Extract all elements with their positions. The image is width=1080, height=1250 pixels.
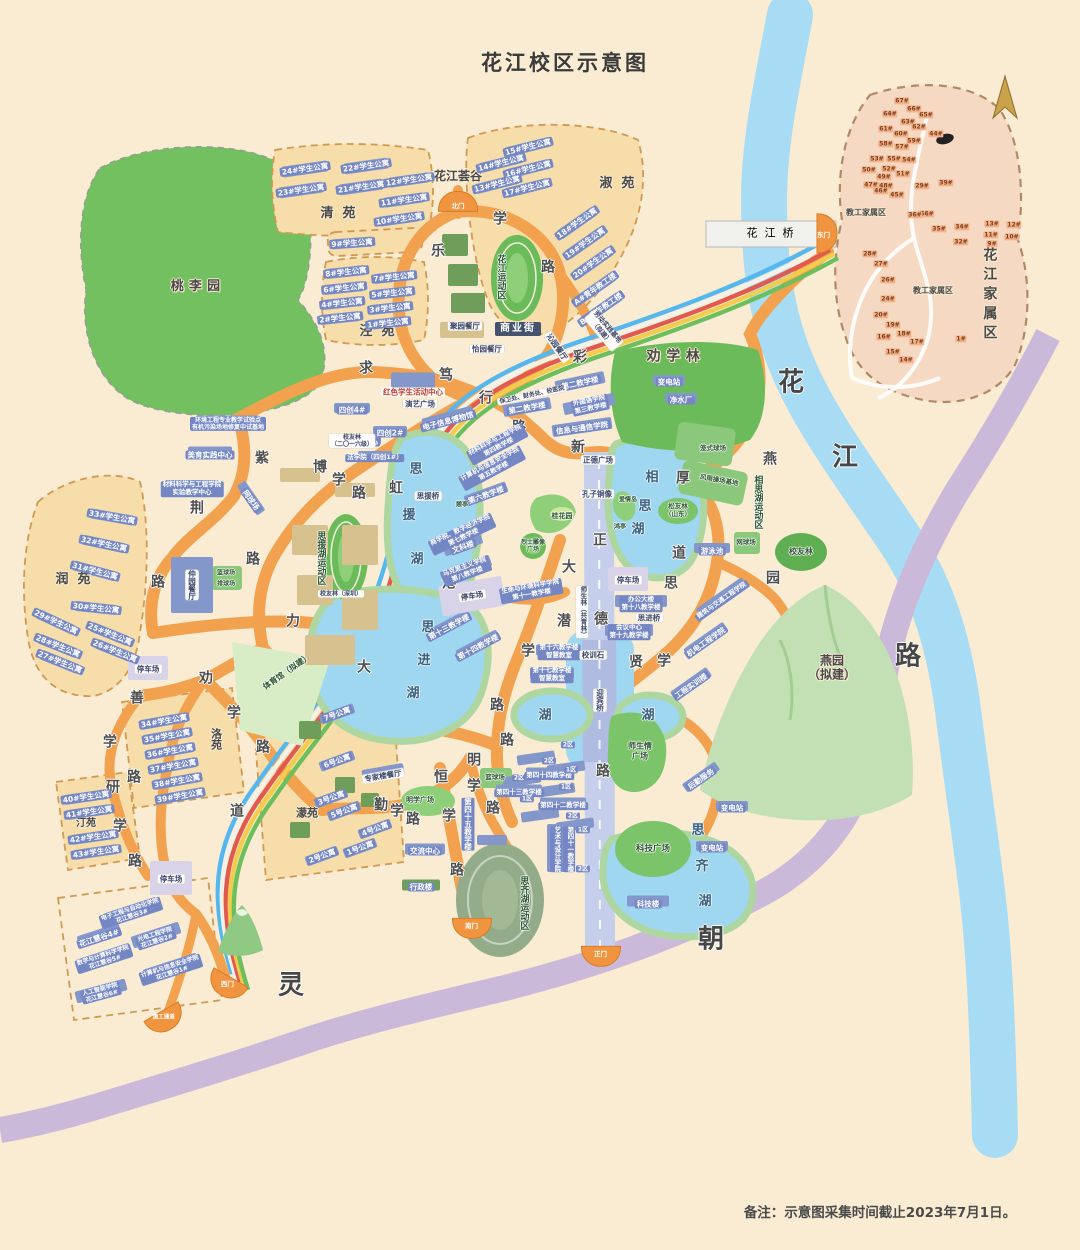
campus-gate: 正门	[581, 946, 621, 967]
building-label: 2#学生公寓	[317, 311, 363, 325]
area-name-label: 润 苑	[55, 572, 90, 588]
place-label: 聚园餐厅	[448, 322, 482, 331]
building-label: 游泳池	[699, 547, 726, 556]
family-building-number: 51#	[895, 170, 910, 177]
building-label: 11#学生公寓	[378, 192, 429, 208]
road-name-char: 道	[672, 546, 686, 563]
green-space-label: 桂花园	[552, 512, 573, 520]
road-name-char: 路	[486, 801, 500, 818]
green-space-label: 花江运动区	[495, 255, 506, 300]
building-label: 3#学生公寓	[367, 301, 413, 315]
building-label: 1区	[564, 766, 578, 773]
place-label: 停车场	[458, 589, 486, 602]
family-building-number: 39#	[938, 179, 953, 186]
green-space-label: 排球场	[217, 580, 235, 587]
activity-center-label: 红色学生活动中心	[381, 388, 445, 397]
place-label: 迎宾桥	[594, 689, 607, 712]
gate-name-label: 东门	[817, 228, 830, 238]
building-label: 35#学生公寓	[141, 727, 193, 745]
family-building-number: 49#	[876, 173, 891, 180]
family-building-number: 13#	[984, 220, 999, 227]
road-name-char: 路	[596, 764, 610, 781]
building-label: 12#学生公寓	[383, 172, 434, 188]
building-label: 38#学生公寓	[151, 772, 203, 790]
green-space-label: 鸿亭	[614, 523, 626, 530]
family-building-number: 28#	[862, 250, 877, 257]
area-name-label: 燕园 （拟建）	[808, 654, 856, 683]
family-building-number: 26#	[880, 276, 895, 283]
road-name-char: 学	[657, 654, 671, 671]
road-name-char: 求	[359, 361, 373, 378]
building-label: 材料科学与工程学院 实验教学中心	[161, 481, 224, 497]
family-building-number: 53#	[869, 155, 884, 162]
area-name-label: 淑 苑	[599, 176, 634, 192]
building-label: 第十七教学楼 智慧教室	[531, 667, 574, 683]
green-space-label: 憩亭	[456, 501, 468, 508]
major-road-char: 花	[778, 367, 804, 398]
building-label: 第四十二教学楼	[538, 802, 588, 810]
road-name-char: 恒	[434, 770, 448, 787]
road-name-char: 道	[230, 804, 244, 821]
lake-name-char: 湖	[410, 552, 423, 568]
family-building-number: 45#	[889, 191, 904, 198]
place-label: 思进桥	[636, 614, 663, 623]
green-space-label: 思援湖运动区	[315, 531, 326, 585]
road-name-char: 贤	[629, 655, 643, 672]
road-name-char: 学	[467, 779, 481, 796]
area-name-label: 花江荟谷	[434, 169, 482, 183]
building-label: 1区	[520, 795, 534, 802]
road-name-char: 学	[103, 735, 117, 752]
family-building-number: 46#	[873, 187, 888, 194]
place-label: 劳动实践基地 （拟建）	[584, 309, 624, 352]
gate-name-label: 西门	[221, 978, 234, 988]
building-label: 1区	[576, 826, 590, 833]
road-name-char: 思	[664, 576, 678, 593]
bridge-label: 花 江 桥	[747, 226, 794, 239]
lake-name-char: 思	[638, 499, 651, 515]
lake-name-char: 湖	[631, 522, 644, 538]
building-label: 6#学生公寓	[321, 281, 367, 295]
green-space-label: 网球场	[736, 539, 756, 547]
building-label: 10#学生公寓	[373, 211, 424, 227]
building-label: 32#学生公寓	[78, 534, 129, 553]
family-building-number: 14#	[898, 356, 913, 363]
campus-gate: 施工通道	[143, 1001, 188, 1039]
family-building-number: 27#	[873, 260, 888, 267]
area-name-label: 濛苑	[296, 806, 318, 819]
building-label: 39#学生公寓	[154, 787, 206, 805]
family-building-number: 55#	[886, 155, 901, 162]
road-name-char: 学	[390, 804, 404, 821]
building-label: 电子工程与自动化学院 花江慧谷3#	[98, 896, 163, 929]
lake-name-char: 思	[691, 823, 704, 839]
road-name-char: 学	[332, 473, 346, 490]
green-space-label: 相思湖运动区	[752, 475, 763, 529]
building-label: 数学与计算科学学院 花江慧谷5#	[74, 943, 134, 975]
building-label: 4号公寓	[359, 819, 392, 838]
building-label: 4#学生公寓	[319, 296, 365, 310]
building-label: 5号公寓	[328, 801, 361, 820]
road-name-char: 路	[352, 486, 366, 503]
building-label: 后勤服务	[684, 766, 717, 793]
building-label: 建筑与交通工程学院	[694, 580, 750, 622]
place-label: 校训石	[580, 651, 607, 660]
building-label: 净水厂	[668, 396, 695, 405]
building-label: 艺术与设计学院	[550, 826, 562, 872]
road-name-char: 新	[571, 440, 585, 457]
road-name-char: 厚	[676, 471, 690, 488]
road-name-char: 路	[246, 552, 260, 569]
road-name-char: 路	[256, 740, 270, 757]
road-name-char: 学	[493, 212, 507, 229]
building-label: 43#学生公寓	[70, 844, 121, 860]
building-label: 9#学生公寓	[329, 237, 375, 249]
place-label: 停车场	[615, 576, 642, 585]
building-label: 变电站	[656, 378, 683, 387]
major-road-char: 路	[895, 641, 921, 672]
building-label: 生命与环境科学学院 第十一教学楼	[499, 578, 563, 604]
area-name-label: 清 苑	[320, 206, 355, 222]
area-name-label: 桃李园	[171, 279, 226, 295]
note-label: 备注：	[744, 1205, 785, 1221]
building-label: 1区	[559, 783, 573, 790]
lake-name-char: 湖	[641, 708, 654, 724]
building-label: 工程实训楼	[671, 670, 710, 701]
road-name-char: 学	[442, 809, 456, 826]
building-label: 15#学生公寓	[502, 136, 553, 157]
area-name-label: 教工家属区	[913, 286, 953, 296]
family-building-number: 34#	[954, 223, 969, 230]
place-label: 孔子铜像	[580, 490, 614, 499]
road-name-char: 笃	[439, 368, 453, 385]
building-label: 法学院（四创1#）	[345, 454, 404, 462]
green-space-label: 篮球场	[485, 774, 505, 782]
road-name-char: 学	[227, 706, 241, 723]
campus-gate: 西门	[203, 967, 248, 1005]
road-name-char: 路	[128, 854, 142, 871]
family-building-number: 19#	[885, 321, 900, 328]
gate-name-label: 施工通道	[153, 1012, 175, 1020]
family-building-number: 29#	[914, 182, 929, 189]
place-label: 正德广场	[581, 456, 615, 465]
lake-name-char: 湖	[698, 894, 711, 910]
building-label: 24#学生公寓	[279, 161, 330, 177]
road-name-char: 紫	[255, 451, 269, 468]
building-label: 5#学生公寓	[369, 286, 415, 300]
road-name-char: 德	[594, 612, 608, 629]
building-label: 第四十一教学楼	[563, 826, 575, 872]
gate-name-label: 南门	[466, 920, 479, 930]
building-label: 交流中心	[408, 847, 442, 856]
map-labels-layer: 桃李园清 苑泾 苑淑 苑润 苑洛苑汀苑濛苑花江荟谷劝学林花江家属区教工家属区教工…	[0, 0, 1080, 1250]
building-label: 7号公寓	[321, 704, 354, 723]
green-space-label: 风雨操场基地	[699, 474, 739, 488]
building-label: 会议中心 第十九教学楼	[608, 624, 651, 640]
building-label: 22#学生公寓	[340, 158, 391, 174]
lake-name-char: 援	[402, 508, 415, 524]
family-building-number: 58#	[878, 140, 893, 147]
family-building-number: 35#	[931, 225, 946, 232]
green-space-label: 校友林	[789, 547, 813, 557]
building-label: 30#学生公寓	[70, 601, 121, 615]
road-name-char: 勤	[374, 798, 388, 815]
building-label: 7#学生公寓	[371, 270, 417, 284]
road-name-char: 路	[127, 770, 141, 787]
place-label: 思援桥	[415, 492, 442, 501]
building-label: 变电站	[699, 844, 726, 853]
building-label: 第四十五教学楼	[462, 798, 475, 851]
building-label: 2号公寓	[306, 846, 339, 865]
green-space-label: 松友林 （山东）	[665, 503, 691, 519]
green-space-label: 体育馆（拟建）	[261, 652, 312, 692]
building-label: 四创4#	[337, 406, 368, 415]
building-label: 2区	[542, 757, 556, 764]
green-space-label: 师生情 广场	[628, 741, 652, 760]
road-name-char: 大	[357, 660, 371, 677]
family-building-number: 9#	[986, 240, 997, 247]
green-space-label: 笼式球场	[700, 445, 726, 453]
road-name-char: 荆	[190, 501, 204, 518]
place-label: 演艺广场	[403, 400, 437, 409]
building-label: 6号公寓	[321, 751, 354, 770]
lake-name-char: 湖	[406, 686, 419, 702]
area-name-label: 花江家属区	[981, 247, 998, 345]
family-building-number: 12#	[1006, 221, 1021, 228]
building-label: 42#学生公寓	[67, 829, 118, 845]
building-label: 计算机与信息安全学院 花江慧谷1#	[138, 953, 203, 986]
road-name-char: 路	[541, 260, 555, 277]
major-road-char: 灵	[278, 970, 304, 1001]
place-label: 怡园餐厅	[470, 345, 504, 354]
family-building-number: 32#	[953, 238, 968, 245]
building-label: 2区	[512, 774, 526, 781]
family-building-number: 61#	[878, 125, 893, 132]
note-text: 示意图采集时间截止2023年7月1日。	[784, 1205, 1016, 1221]
building-label: 光电工程学院 花江慧谷2#	[135, 925, 177, 951]
family-building-number: 11#	[983, 231, 998, 238]
road-name-char: 园	[766, 571, 780, 588]
lake-name-char: 进	[417, 653, 430, 669]
family-building-number: 15#	[885, 348, 900, 355]
lake-name-char: 齐	[695, 859, 708, 875]
family-building-number: 24#	[880, 295, 895, 302]
road-name-char: 行	[479, 391, 493, 408]
building-label: 第十六教学楼 智慧教室	[538, 644, 581, 660]
road-name-char: 路	[151, 575, 165, 592]
major-road-char: 江	[832, 442, 858, 473]
road-name-char: 虹	[389, 481, 403, 498]
family-building-number: 57#	[894, 143, 909, 150]
building-label: 第四十三教学楼	[494, 789, 544, 797]
road-name-char: 力	[286, 614, 300, 631]
place-label: 停车场	[135, 665, 162, 674]
family-building-number: 36#	[907, 211, 922, 218]
building-label: 2区	[566, 812, 580, 819]
road-name-char: 学	[521, 644, 535, 661]
road-name-char: 路	[406, 812, 420, 829]
family-building-number: 65#	[918, 111, 933, 118]
family-building-number: 10#	[1004, 233, 1019, 240]
family-building-number: 1#	[955, 335, 966, 342]
area-name-label: 劝学林	[647, 349, 706, 366]
family-building-number: 18#	[896, 330, 911, 337]
building-label: 第十四教学楼	[454, 632, 501, 663]
building-label: 行政楼	[408, 883, 435, 892]
building-label: 1号公寓	[344, 838, 377, 857]
road-name-char: 劝	[199, 671, 213, 688]
building-label: 网球场	[240, 487, 263, 514]
place-label: 师生林（共青林）	[576, 586, 588, 638]
area-name-label: 教工家属区	[846, 208, 886, 218]
lake-name-char: 相	[645, 470, 658, 486]
road-name-char: 路	[500, 733, 514, 750]
campus-gate: 南门	[452, 918, 492, 939]
family-building-number: 54#	[901, 156, 916, 163]
family-building-number: 17#	[909, 338, 924, 345]
building-label: 36#学生公寓	[144, 742, 196, 760]
building-label: 环境工程专业教学试验点 有机污染场地修复中试基地	[190, 417, 266, 431]
campus-gate: 北门	[438, 191, 478, 212]
building-label: 科技楼	[635, 900, 662, 909]
place-label: 仲园餐厅	[186, 570, 199, 600]
building-label: 人工智能学院 花江慧谷6#	[80, 981, 122, 1005]
road-name-char: 善	[130, 691, 144, 708]
lake-name-char: 思	[409, 462, 422, 478]
building-label: 2区	[576, 865, 590, 872]
road-name-char: 潜	[557, 614, 571, 631]
gate-name-label: 正门	[595, 948, 608, 958]
building-label: 马克思主义学院 第八教学楼	[440, 555, 492, 587]
area-name-label: 汀苑	[76, 818, 96, 830]
building-label: 40#学生公寓	[60, 789, 111, 805]
lake-name-char: 湖	[538, 708, 551, 724]
family-building-number: 50#	[861, 166, 876, 173]
building-label: 机电工程学院	[683, 624, 728, 659]
green-space-label: 明学广场	[406, 796, 434, 804]
building-label: 2区	[561, 741, 575, 748]
building-label: 37#学生公寓	[147, 757, 199, 775]
road-name-char: 路	[450, 863, 464, 880]
building-label: 信息与通信学院	[553, 420, 610, 437]
commercial-street-label: 商业街	[495, 322, 541, 336]
family-building-number: 16#	[876, 333, 891, 340]
building-label: 23#学生公寓	[275, 182, 326, 198]
building-label: 变电站	[719, 804, 746, 813]
building-label: 办公大楼 第十八教学楼	[620, 596, 663, 612]
building-label: 美育实践中心	[186, 451, 235, 460]
building-label: 四创2#	[375, 429, 406, 438]
building-label: 8#学生公寓	[323, 265, 369, 279]
green-space-label: 科技广场	[636, 844, 670, 854]
road-name-char: 大	[562, 560, 576, 577]
building-label: 21#学生公寓	[335, 179, 386, 195]
campus-map: 桃李园清 苑泾 苑淑 苑润 苑洛苑汀苑濛苑花江荟谷劝学林花江家属区教工家属区教工…	[0, 0, 1080, 1250]
campus-gate: 东门	[817, 213, 838, 253]
family-building-number: 44#	[928, 130, 943, 137]
building-label: 34#学生公寓	[138, 712, 190, 730]
green-space-label: 篮球场	[217, 569, 235, 576]
road-name-char: 正	[593, 533, 607, 550]
map-note: 备注：示意图采集时间截止2023年7月1日。	[744, 1201, 1016, 1221]
family-building-number: 67#	[894, 97, 909, 104]
building-label: 电子信息博物馆	[420, 409, 477, 432]
green-space-label: 爱情岛	[619, 496, 637, 503]
gate-name-label: 北门	[452, 200, 465, 210]
building-label: 外国语学院 第三教学楼	[571, 394, 610, 417]
building-label: 花江慧谷4#	[76, 927, 122, 950]
family-building-number: 20#	[873, 311, 888, 318]
road-name-char: 乐	[431, 244, 445, 261]
road-name-char: 路	[490, 698, 504, 715]
building-label: 3号公寓	[315, 788, 348, 807]
road-name-char: 博	[313, 460, 327, 477]
family-building-number: 64#	[882, 110, 897, 117]
road-name-char: 彩	[573, 350, 587, 367]
road-name-char: 明	[467, 753, 481, 770]
place-label: 沁园餐厅	[544, 330, 571, 363]
place-label: 停车场	[158, 875, 185, 884]
place-label: 校友林（深圳）	[318, 590, 364, 597]
major-road-char: 朝	[698, 924, 724, 955]
place-label: 专家楼餐厅	[362, 768, 404, 784]
green-space-label: 烈士雕像 广场	[521, 539, 545, 553]
place-label: 校友林 （二〇一六级）	[329, 434, 375, 448]
building-label: 33#学生公寓	[86, 508, 138, 526]
family-building-number: 62#	[911, 123, 926, 130]
green-space-label: 思齐湖运动区	[518, 876, 529, 930]
map-title: 花江校区示意图	[481, 47, 649, 77]
area-name-label: 洛苑	[209, 728, 222, 750]
road-name-char: 燕	[763, 452, 777, 469]
